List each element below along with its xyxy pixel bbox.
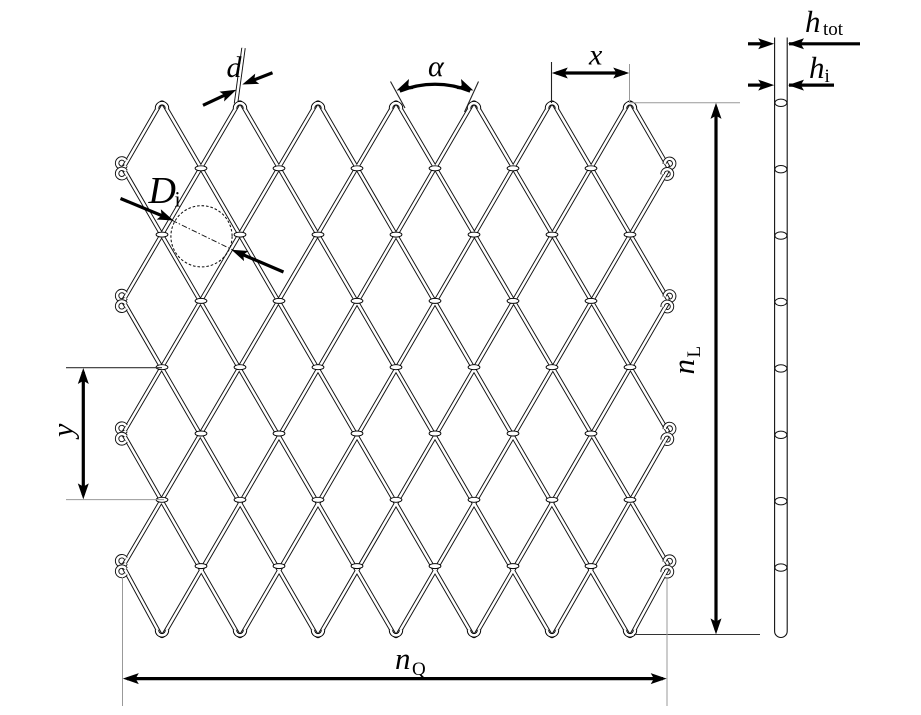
svg-text:Q: Q xyxy=(412,659,426,680)
svg-text:L: L xyxy=(684,346,705,358)
svg-text:D: D xyxy=(148,170,176,212)
svg-text:tot: tot xyxy=(823,19,844,40)
svg-text:n: n xyxy=(395,641,411,676)
svg-text:i: i xyxy=(175,187,181,212)
svg-text:d: d xyxy=(227,51,243,84)
svg-text:n: n xyxy=(666,359,701,375)
svg-text:α: α xyxy=(428,50,445,83)
svg-text:h: h xyxy=(809,50,825,85)
svg-text:x: x xyxy=(588,39,603,72)
svg-text:i: i xyxy=(825,66,830,87)
svg-text:h: h xyxy=(805,4,821,39)
svg-text:y: y xyxy=(47,423,80,440)
